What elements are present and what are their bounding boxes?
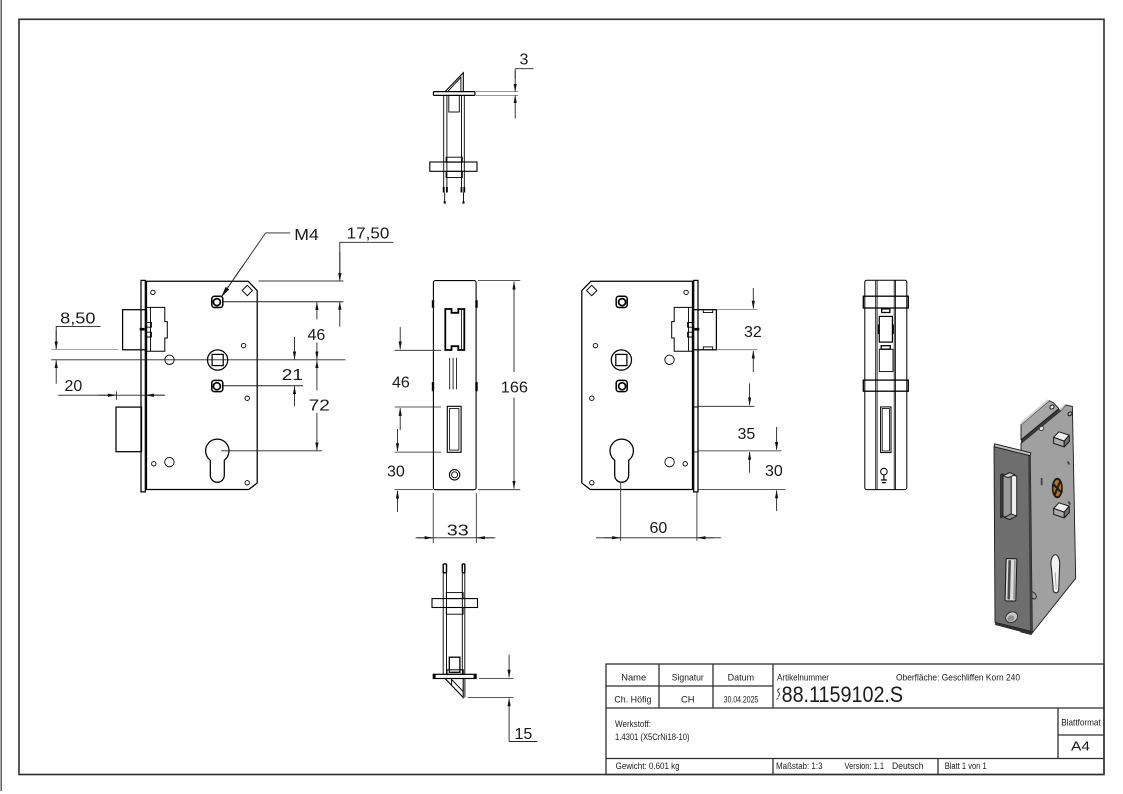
svg-text:17,50: 17,50	[347, 226, 390, 243]
svg-text:Gewicht: 0.601 kg: Gewicht: 0.601 kg	[616, 760, 680, 771]
svg-text:88.1159102.S: 88.1159102.S	[782, 682, 904, 707]
svg-text:Name: Name	[621, 671, 646, 682]
svg-text:166: 166	[501, 380, 528, 397]
svg-text:Ch. Höfig: Ch. Höfig	[614, 693, 651, 704]
svg-text:Oberfläche: Geschliffen Korn: Oberfläche: Geschliffen Korn 240	[896, 671, 1020, 682]
svg-text:46: 46	[392, 375, 410, 392]
svg-text:Blattformat: Blattformat	[1061, 717, 1101, 728]
svg-text:72: 72	[309, 398, 330, 415]
svg-text:21: 21	[282, 367, 303, 384]
svg-text:1.4301 (X5CrNi18-10): 1.4301 (X5CrNi18-10)	[615, 731, 690, 742]
svg-text:35: 35	[738, 426, 756, 443]
svg-text:Datum: Datum	[728, 671, 755, 682]
svg-text:30.04.2025: 30.04.2025	[724, 693, 759, 704]
svg-text:46: 46	[308, 327, 326, 344]
svg-text:Version: 1.1: Version: 1.1	[845, 760, 885, 771]
svg-text:M4: M4	[294, 227, 319, 244]
svg-text:30: 30	[765, 463, 783, 480]
svg-text:15: 15	[515, 726, 533, 743]
svg-text:30: 30	[387, 464, 405, 481]
svg-text:Werkstoff:: Werkstoff:	[615, 718, 651, 729]
svg-text:Blatt 1 von 1: Blatt 1 von 1	[945, 760, 987, 771]
svg-text:32: 32	[744, 324, 762, 341]
svg-text:8,50: 8,50	[60, 311, 95, 328]
svg-text:Signatur: Signatur	[672, 671, 704, 682]
svg-text:3: 3	[520, 52, 529, 69]
svg-text:CH: CH	[681, 693, 695, 704]
svg-text:60: 60	[650, 520, 668, 537]
svg-text:A4: A4	[1071, 738, 1090, 753]
svg-text:20: 20	[65, 378, 83, 395]
svg-text:Deutsch: Deutsch	[892, 760, 924, 771]
svg-text:Maßstab: 1:3: Maßstab: 1:3	[776, 760, 823, 771]
svg-text:Artikelnummer: Artikelnummer	[777, 671, 829, 682]
svg-text:33: 33	[447, 523, 469, 540]
